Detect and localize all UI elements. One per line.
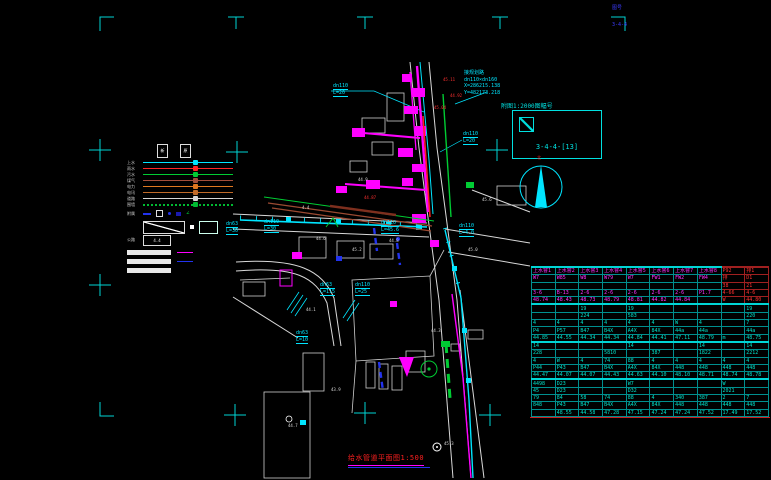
legend-line-marker xyxy=(193,178,198,183)
table-cell: 58 xyxy=(579,395,603,402)
table-cell: FW1 xyxy=(650,275,674,282)
table-cell: FW4 xyxy=(697,275,721,282)
table-row: 4W4748844444 xyxy=(532,357,769,364)
table-row: 848P43B47B4XA4X84X448448448448 xyxy=(532,402,769,409)
table-cell: 38 xyxy=(721,282,745,289)
table-cell: W xyxy=(721,297,745,305)
legend-line-marker xyxy=(193,190,198,195)
pipes-magenta xyxy=(280,66,471,478)
pipe-length-text: L=25 xyxy=(355,289,370,296)
spot-elevation: 44.6 xyxy=(316,237,326,241)
title-underline-blue xyxy=(348,467,430,468)
table-cell xyxy=(603,379,627,387)
table-cell: 44.80 xyxy=(745,297,769,305)
table-cell xyxy=(555,312,579,319)
table-row: P4P57B47B4XA4X84X44a44a44a xyxy=(532,327,769,334)
table-cell: 448 xyxy=(697,402,721,409)
spot-elevation-red: 44.92 xyxy=(450,94,462,98)
table-row: 3-6B-132-62-62-62-62-6P1.74-664-6 xyxy=(532,289,769,296)
pipe-size-text: dn110 xyxy=(264,219,279,226)
table-cell: 2-6 xyxy=(650,289,674,296)
spot-elevation-red: 45.11 xyxy=(443,78,455,82)
table-cell: 48.10 xyxy=(674,372,698,380)
table-cell: 上水窨3 xyxy=(579,267,603,275)
table-cell: 84X xyxy=(650,327,674,334)
table-cell: 排 xyxy=(721,275,745,282)
table-cell: 47.28 xyxy=(603,409,627,416)
legend-col-old: 原 xyxy=(180,144,191,158)
table-row: P44P43B47B4XA4X84X448448448448 xyxy=(532,364,769,371)
spot-elevation: 44.3 xyxy=(431,329,441,333)
table-cell: 4 xyxy=(650,357,674,364)
table-cell xyxy=(650,304,674,312)
table-cell: 4 xyxy=(579,320,603,327)
legend-bar-row xyxy=(127,266,233,275)
table-cell: 44.85 xyxy=(532,334,556,342)
table-cell: 448 xyxy=(745,402,769,409)
table-row: 44.8544.5544.3444.3444.8444.4147.1148.79… xyxy=(532,334,769,342)
table-cell: 14 xyxy=(532,342,556,350)
pipe-length-text: L=20 xyxy=(333,90,348,97)
table-cell xyxy=(650,387,674,394)
table-cell xyxy=(721,327,745,334)
table-cell: 1822 xyxy=(697,350,721,357)
spot-elevation: 45.0 xyxy=(468,248,478,252)
table-cell: 4 xyxy=(603,320,627,327)
pipe-length-text: L=115 xyxy=(320,289,335,296)
corner-note: 3-4-4 xyxy=(612,22,627,28)
table-cell: W xyxy=(555,357,579,364)
table-cell: 448 xyxy=(697,364,721,371)
table-row: W7W85W8W79W7FW1FW2FW4排D1 xyxy=(532,275,769,282)
pipe-length-text: L=10 xyxy=(296,337,308,344)
spot-elevation: 44.9 xyxy=(358,178,368,182)
legend-item: 围墙 xyxy=(127,202,233,208)
legend-col-new: 新 xyxy=(157,144,168,158)
legend-line-marker xyxy=(193,184,198,189)
table-cell: 7 xyxy=(745,395,769,402)
table-row: 224583220 xyxy=(532,312,769,319)
table-cell: 84X xyxy=(650,402,674,409)
navy-box-symbol xyxy=(176,212,181,216)
table-cell xyxy=(555,304,579,312)
table-cell: 4 xyxy=(697,320,721,327)
table-cell: 4498 xyxy=(532,379,556,387)
table-cell: 88 xyxy=(626,357,650,364)
table-row: 上水窨1上水窨2上水窨3上水窨4上水窨5上水窨6上水窨7上水窨8P92排1 xyxy=(532,267,769,275)
table-row: 45D23D322021 xyxy=(532,387,769,394)
spot-elevation-red: 45.04 xyxy=(434,106,446,110)
table-cell: 48.55 xyxy=(555,409,579,416)
spot-elevation: 43.9 xyxy=(331,388,341,392)
pipe-length-text: L=4.0 xyxy=(459,230,474,237)
spot-elevation: 44.8 xyxy=(389,239,399,243)
corner-note: 图号 xyxy=(612,5,622,11)
table-cell: 448 xyxy=(721,402,745,409)
table-cell xyxy=(579,379,603,387)
table-cell: 4 xyxy=(532,357,556,364)
table-cell xyxy=(532,304,556,312)
table-cell: D1 xyxy=(745,275,769,282)
table-cell: 448 xyxy=(674,364,698,371)
table-cell: B4X xyxy=(603,327,627,334)
table-cell: 44.84 xyxy=(626,334,650,342)
table-cell: 44.34 xyxy=(579,334,603,342)
table-cell: 340 xyxy=(674,395,698,402)
legend-line-stroke xyxy=(143,204,233,206)
table-cell xyxy=(697,282,721,289)
white-bar-symbol xyxy=(127,259,171,264)
table-cell: 448 xyxy=(674,402,698,409)
legend-symbols-row: 附属 ∠ xyxy=(127,209,233,218)
spot-elevation-red: 44.87 xyxy=(364,196,376,200)
table-cell: 44.10 xyxy=(650,372,674,380)
legend-road-row: 公路 4.4 xyxy=(127,234,233,246)
spot-elevation: 45.2 xyxy=(352,248,362,252)
table-row: 48.5544.5847.2847.1547.2447.2447.5217.49… xyxy=(532,409,769,416)
table-cell xyxy=(650,379,674,387)
table-cell: 4 xyxy=(674,357,698,364)
table-cell: 17.49 xyxy=(721,409,745,416)
table-cell: 74 xyxy=(603,357,627,364)
table-cell: P43 xyxy=(555,364,579,371)
small-square-symbol xyxy=(190,225,194,229)
table-cell: 44.41 xyxy=(650,334,674,342)
legend-bar-row xyxy=(127,257,233,266)
survey-note-line: Y=482173.218 xyxy=(464,90,500,97)
table-cell: P4 xyxy=(532,327,556,334)
table-cell xyxy=(532,282,556,289)
pipe-label: dn110L=4.0 xyxy=(459,223,474,237)
table-cell: 44.84 xyxy=(674,297,698,305)
table-cell: W79 xyxy=(603,275,627,282)
table-cell xyxy=(674,342,698,350)
table-cell: 44.07 xyxy=(555,372,579,380)
table-cell: D32 xyxy=(626,387,650,394)
hatched-square-icon xyxy=(519,117,534,132)
table-cell: 44a xyxy=(745,327,769,334)
table-cell: 44.43 xyxy=(603,372,627,380)
spot-elevation: 4.4 xyxy=(302,206,309,210)
green-angle-symbol: ∠ xyxy=(186,211,190,217)
blue-line-symbol xyxy=(177,261,193,262)
table-cell xyxy=(555,342,579,350)
legend-item-label: 围墙 xyxy=(127,202,143,208)
table-cell: 48.74 xyxy=(721,372,745,380)
table-cell: 48.43 xyxy=(555,297,579,305)
pipe-label: dn110L=25 xyxy=(355,282,370,296)
table-cell: 上水窨8 xyxy=(697,267,721,275)
table-cell: 79 xyxy=(532,395,556,402)
table-cell: 4-66 xyxy=(721,289,745,296)
table-cell: 44.82 xyxy=(650,297,674,305)
table-row: 228581038718222212 xyxy=(532,350,769,357)
table-cell: 387 xyxy=(697,395,721,402)
white-bar-symbol xyxy=(127,250,171,255)
legend-line-marker xyxy=(193,202,198,207)
legend-sample-row xyxy=(127,220,233,234)
pipe-label: dn110L=30 xyxy=(264,219,279,233)
detail-locator-caption: 附图1:2000图幅号 xyxy=(501,101,553,110)
legend-line-marker xyxy=(193,196,198,201)
table-cell: 48.75 xyxy=(745,334,769,342)
roads xyxy=(233,62,530,478)
drawing-title: 给水管道平面图1:500 xyxy=(348,454,424,462)
legend-item-line xyxy=(143,202,233,208)
table-cell: 14 xyxy=(697,342,721,350)
table-cell: 44.34 xyxy=(603,334,627,342)
table-cell xyxy=(745,379,769,387)
table-cell: 4 xyxy=(745,357,769,364)
table-cell xyxy=(697,387,721,394)
table-cell xyxy=(674,282,698,289)
table-cell xyxy=(579,342,603,350)
legend-line-stroke xyxy=(143,192,233,193)
table-cell xyxy=(579,350,603,357)
survey-note: 接规划路dn110×dn160X=286215.138Y=482173.218 xyxy=(464,70,500,96)
table-cell: 48.78 xyxy=(745,372,769,380)
table-row: 48.7448.4348.7348.7948.8144.8244.84W44.8… xyxy=(532,297,769,305)
pipe-length-text: L=30 xyxy=(226,228,238,235)
legend-line-marker xyxy=(193,166,198,171)
table-cell: 2021 xyxy=(721,387,745,394)
cad-canvas[interactable]: 新 原 上水雨水污水煤气电力电讯道路围墙 附属 ∠ 公路 4.4 xyxy=(0,0,771,480)
table-cell xyxy=(674,350,698,357)
pipe-size-text: dn110 xyxy=(355,282,370,289)
table-cell: W7 xyxy=(626,275,650,282)
table-cell: 14 xyxy=(745,342,769,350)
table-row: 3821 xyxy=(532,282,769,289)
table-cell xyxy=(579,387,603,394)
table-cell: B4X xyxy=(603,364,627,371)
table-cell: 44.07 xyxy=(579,372,603,380)
table-cell: 上水窨4 xyxy=(603,267,627,275)
table-cell xyxy=(674,304,698,312)
table-cell: 4 xyxy=(555,320,579,327)
table-cell: W7 xyxy=(532,275,556,282)
table-cell: 47.52 xyxy=(697,409,721,416)
table-cell: 84X xyxy=(650,364,674,371)
table-cell xyxy=(555,350,579,357)
table-cell xyxy=(626,350,650,357)
table-cell: 4 xyxy=(721,357,745,364)
table-cell xyxy=(697,379,721,387)
table-row: 191919 xyxy=(532,304,769,312)
table-cell: W xyxy=(674,320,698,327)
legend-bars xyxy=(127,248,233,275)
table-cell: 44a xyxy=(697,327,721,334)
table-cell: P57 xyxy=(555,327,579,334)
pipe-label: dn110L=45.6 xyxy=(381,220,399,234)
table-cell: D23 xyxy=(555,387,579,394)
well-data-table: 上水窨1上水窨2上水窨3上水窨4上水窨5上水窨6上水窨7上水窨8P92排1W7W… xyxy=(531,266,769,417)
table-cell: W8 xyxy=(579,275,603,282)
table-cell: 21 xyxy=(745,282,769,289)
legend-line-stroke xyxy=(143,198,233,199)
table-cell: 17.52 xyxy=(745,409,769,416)
table-cell: 排1 xyxy=(745,267,769,275)
table-cell: 44.47 xyxy=(532,372,556,380)
table-cell: 上水窨1 xyxy=(532,267,556,275)
table-bottom-red-line xyxy=(530,417,770,418)
table-cell: 48.74 xyxy=(532,297,556,305)
table-cell xyxy=(745,387,769,394)
table-cell xyxy=(532,312,556,319)
blue-dash-symbol xyxy=(143,213,151,215)
spot-elevation: 45.3 xyxy=(444,442,454,446)
table-cell: 上水窨5 xyxy=(626,267,650,275)
table-cell xyxy=(721,342,745,350)
legend-bar-row xyxy=(127,248,233,257)
table-cell: 4 xyxy=(650,320,674,327)
table-cell: D23 xyxy=(555,379,579,387)
pipe-length-text: L=20 xyxy=(463,138,478,145)
pipe-label: dn110L=20 xyxy=(463,131,478,145)
table-cell xyxy=(532,409,556,416)
table-cell: 2-6 xyxy=(579,289,603,296)
table-cell: 7 xyxy=(745,320,769,327)
table-cell: W85 xyxy=(555,275,579,282)
table-cell: 2-6 xyxy=(603,289,627,296)
table-cell: P1.7 xyxy=(697,289,721,296)
pipe-size-text: dn110 xyxy=(463,131,478,138)
table-cell: B-13 xyxy=(555,289,579,296)
legend-line-marker xyxy=(193,172,198,177)
table-cell: 88 xyxy=(626,395,650,402)
table-cell: 44.63 xyxy=(626,372,650,380)
table-cell: 4-6 xyxy=(745,289,769,296)
pipe-size-text: dn63 xyxy=(320,282,335,289)
legend-road-label: 公路 xyxy=(127,237,143,243)
table-cell: B47 xyxy=(579,364,603,371)
table-cell: 19 xyxy=(745,304,769,312)
spot-elevation: 44.7 xyxy=(288,424,298,428)
table-cell xyxy=(579,282,603,289)
survey-note-line: X=286215.138 xyxy=(464,83,500,90)
table-cell: 220 xyxy=(745,312,769,319)
table-cell: P92 xyxy=(721,267,745,275)
table-cell: P43 xyxy=(555,402,579,409)
table-cell xyxy=(697,312,721,319)
table-cell: 224 xyxy=(579,312,603,319)
table-cell: 48.79 xyxy=(603,297,627,305)
table-cell: 2212 xyxy=(745,350,769,357)
table-cell: A4X xyxy=(626,327,650,334)
pipe-label: dn63L=10 xyxy=(296,330,308,344)
table-cell: m xyxy=(721,334,745,342)
table-cell: B4X xyxy=(603,402,627,409)
table-cell xyxy=(650,342,674,350)
table-cell: 47.11 xyxy=(674,334,698,342)
table-cell: B47 xyxy=(579,402,603,409)
legend-line-marker xyxy=(193,160,198,165)
table-cell: 4 xyxy=(697,357,721,364)
table-cell xyxy=(674,379,698,387)
table-cell: 45 xyxy=(532,387,556,394)
table-cell xyxy=(674,387,698,394)
table-cell: 2-6 xyxy=(674,289,698,296)
diagonal-box-symbol xyxy=(143,221,185,234)
legend-header: 新 原 xyxy=(127,144,233,158)
table-cell: W xyxy=(721,379,745,387)
detail-locator-box: 3-4-4-[13] xyxy=(512,110,602,159)
blue-dot-symbol xyxy=(168,212,171,215)
north-arrow-label: 北 xyxy=(537,155,541,161)
table-cell xyxy=(697,297,721,305)
table-cell: 47.24 xyxy=(650,409,674,416)
pipe-label: dn110L=20 xyxy=(333,83,348,97)
table-cell: 74 xyxy=(603,395,627,402)
pipe-size-text: dn63 xyxy=(296,330,308,337)
legend-line-stroke xyxy=(143,162,233,163)
table-cell xyxy=(674,312,698,319)
table-cell: 448 xyxy=(745,364,769,371)
legend-line-stroke xyxy=(143,174,233,175)
table-cell: 48.71 xyxy=(697,372,721,380)
title-underline-magenta xyxy=(348,465,424,466)
table-cell: 4 xyxy=(579,357,603,364)
table-cell: 583 xyxy=(626,312,650,319)
road-box: 4.4 xyxy=(143,235,171,246)
table-cell xyxy=(721,312,745,319)
spot-elevation: 45.6 xyxy=(482,198,492,202)
table-cell: 5810 xyxy=(603,350,627,357)
table-cell xyxy=(721,320,745,327)
pipes-blue xyxy=(336,228,400,391)
table-row: 4498D23W7W xyxy=(532,379,769,387)
legend-line-stroke xyxy=(143,180,233,181)
table-cell: 387 xyxy=(650,350,674,357)
table-row: 444444W47 xyxy=(532,320,769,327)
pipe-length-text: L=30 xyxy=(264,226,279,233)
legend: 新 原 上水雨水污水煤气电力电讯道路围墙 附属 ∠ 公路 4.4 xyxy=(127,144,233,275)
magenta-line-symbol xyxy=(177,252,193,253)
table-cell: 448 xyxy=(721,364,745,371)
table-cell: 3-6 xyxy=(532,289,556,296)
table-cell: 48.73 xyxy=(579,297,603,305)
open-box-symbol xyxy=(156,210,163,217)
table-cell: A4X xyxy=(626,364,650,371)
table-cell: 上水窨2 xyxy=(555,267,579,275)
table-cell xyxy=(555,282,579,289)
table-cell: 14 xyxy=(626,342,650,350)
table-cell: 47.24 xyxy=(674,409,698,416)
table-cell: P44 xyxy=(532,364,556,371)
pipe-label: dn63L=115 xyxy=(320,282,335,296)
table-cell: 228 xyxy=(532,350,556,357)
table-cell: 上水窨6 xyxy=(650,267,674,275)
drawing-title-scale: 1:500 xyxy=(401,454,425,462)
table-cell: 4 xyxy=(532,320,556,327)
pipe-length-text: L=45.6 xyxy=(381,227,399,234)
table-row: 7984587488434038727 xyxy=(532,395,769,402)
table-cell: 44a xyxy=(674,327,698,334)
table-cell xyxy=(650,312,674,319)
table-cell: 44.58 xyxy=(579,409,603,416)
table-cell xyxy=(721,350,745,357)
table-cell xyxy=(603,387,627,394)
table-cell xyxy=(697,304,721,312)
legend-symbols-label: 附属 xyxy=(127,211,143,217)
legend-line-stroke xyxy=(143,186,233,187)
legend-line-stroke xyxy=(143,168,233,169)
table-cell: 84 xyxy=(555,395,579,402)
pipe-size-text: dn110 xyxy=(381,220,399,227)
pipe-label: dn63L=30 xyxy=(226,221,238,235)
table-cell: B47 xyxy=(579,327,603,334)
table-cell xyxy=(721,304,745,312)
table-cell: 44.55 xyxy=(555,334,579,342)
